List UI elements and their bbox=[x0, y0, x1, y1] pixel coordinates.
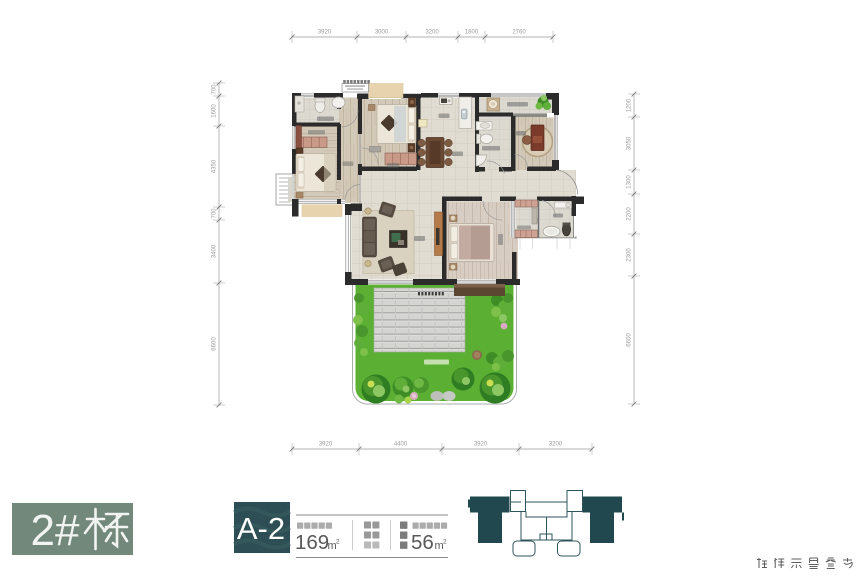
svg-text:6600: 6600 bbox=[212, 337, 218, 351]
svg-text:3050: 3050 bbox=[627, 136, 633, 150]
svg-text:56: 56 bbox=[411, 531, 434, 554]
svg-text:1600: 1600 bbox=[212, 104, 218, 118]
svg-text:169: 169 bbox=[295, 531, 329, 554]
svg-text:4400: 4400 bbox=[394, 442, 408, 448]
svg-text:A-2: A-2 bbox=[237, 511, 285, 546]
svg-text:3400: 3400 bbox=[212, 244, 218, 258]
svg-text:6600: 6600 bbox=[627, 333, 633, 347]
svg-text:3920: 3920 bbox=[474, 442, 488, 448]
svg-text:3000: 3000 bbox=[375, 30, 389, 36]
svg-text:4350: 4350 bbox=[212, 159, 218, 173]
svg-text:3200: 3200 bbox=[425, 30, 439, 36]
svg-text:700: 700 bbox=[212, 208, 218, 219]
svg-text:3200: 3200 bbox=[549, 442, 563, 448]
svg-text:2200: 2200 bbox=[627, 207, 633, 221]
svg-text:2760: 2760 bbox=[512, 30, 526, 36]
svg-text:2: 2 bbox=[443, 539, 447, 546]
svg-text:1200: 1200 bbox=[627, 98, 633, 112]
svg-text:2: 2 bbox=[336, 539, 340, 546]
svg-text:1800: 1800 bbox=[465, 30, 479, 36]
svg-text:3920: 3920 bbox=[318, 30, 332, 36]
svg-text:1300: 1300 bbox=[627, 175, 633, 189]
svg-text:3920: 3920 bbox=[319, 442, 333, 448]
svg-text:2300: 2300 bbox=[627, 248, 633, 262]
svg-text:2#: 2# bbox=[31, 506, 80, 555]
svg-text:700: 700 bbox=[212, 84, 218, 95]
